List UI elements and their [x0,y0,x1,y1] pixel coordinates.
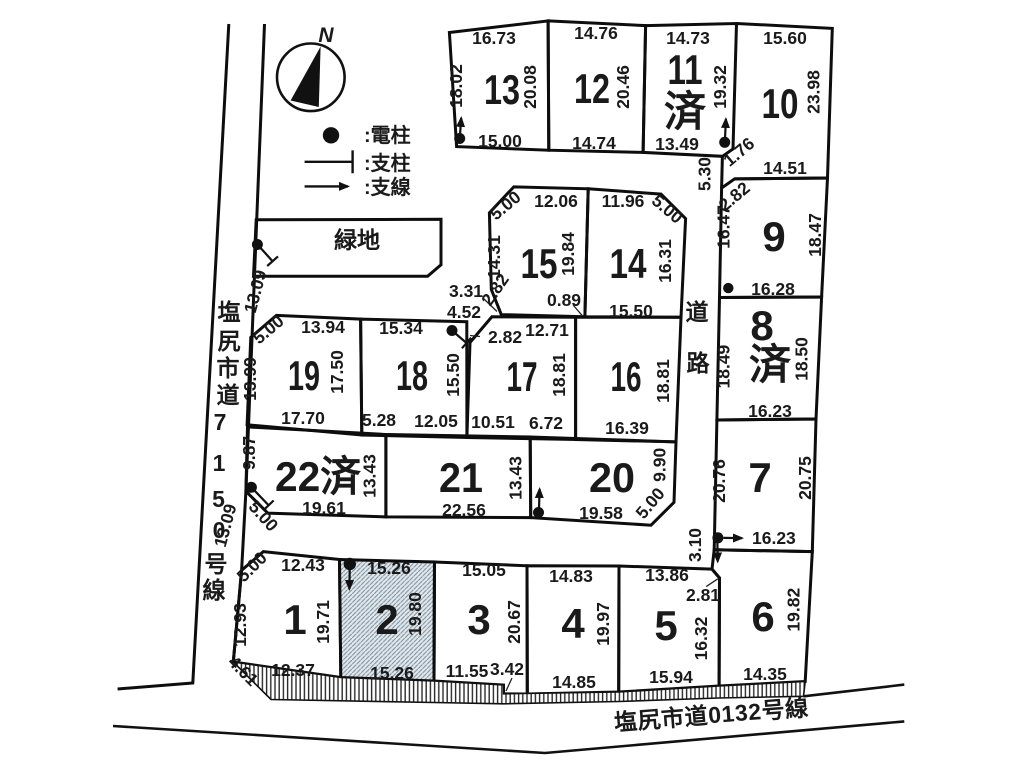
svg-text:20.76: 20.76 [709,459,729,503]
svg-text:緑地: 緑地 [334,227,380,253]
svg-text:19.84: 19.84 [558,232,578,276]
svg-text:号: 号 [205,551,228,577]
svg-text:15.60: 15.60 [763,28,807,48]
svg-text:0: 0 [213,517,226,543]
svg-text:道: 道 [217,382,240,408]
svg-text:4: 4 [561,600,585,647]
svg-text:7: 7 [214,409,227,435]
svg-text:3.31: 3.31 [449,281,483,301]
svg-text:10: 10 [762,80,799,127]
svg-text:13.09: 13.09 [240,267,271,315]
svg-text:尻: 尻 [218,328,241,354]
svg-text:17: 17 [507,353,538,400]
svg-text:10.51: 10.51 [471,412,515,432]
svg-text:13: 13 [484,66,520,113]
svg-text:14.85: 14.85 [552,672,596,692]
svg-text:11.55: 11.55 [446,661,489,681]
svg-text:9.87: 9.87 [239,436,259,470]
svg-text:15.50: 15.50 [443,353,463,397]
svg-text:N: N [318,24,334,47]
svg-text:12.06: 12.06 [534,191,578,211]
svg-text:15.94: 15.94 [649,667,693,687]
svg-text:16.47: 16.47 [713,205,733,249]
svg-text:15.50: 15.50 [609,301,653,321]
svg-text:13.86: 13.86 [645,565,689,585]
svg-text:11: 11 [668,46,703,93]
svg-text:16.31: 16.31 [655,239,675,283]
svg-text:16.23: 16.23 [748,401,792,421]
svg-text:5.00: 5.00 [245,497,283,536]
svg-text:12.43: 12.43 [281,555,325,575]
svg-text:12.05: 12.05 [414,411,458,431]
svg-text:15.05: 15.05 [462,560,506,580]
svg-text:19.32: 19.32 [710,65,730,109]
svg-text:3.42: 3.42 [490,659,524,679]
svg-text:12.93: 12.93 [230,603,250,647]
svg-text:21: 21 [439,454,483,501]
svg-text:14.73: 14.73 [666,28,710,48]
svg-text:路: 路 [687,350,711,376]
svg-text:5: 5 [654,602,677,649]
svg-text:12.71: 12.71 [525,320,569,340]
svg-text:2: 2 [375,596,398,643]
svg-text:道: 道 [686,299,709,325]
svg-text:18.02: 18.02 [446,64,466,108]
svg-text:18.49: 18.49 [713,344,733,388]
svg-text:13.99: 13.99 [240,357,260,401]
svg-text:15: 15 [521,240,558,287]
svg-text:16.23: 16.23 [752,528,796,548]
svg-text:塩: 塩 [218,299,241,325]
svg-text:3.10: 3.10 [685,528,705,562]
svg-text:済: 済 [664,88,707,135]
svg-text:14.35: 14.35 [743,664,787,684]
svg-text:19.80: 19.80 [405,592,425,636]
svg-text:19: 19 [288,352,320,399]
svg-text:12.37: 12.37 [271,660,315,680]
svg-text:13.94: 13.94 [301,317,345,337]
svg-text:18.50: 18.50 [792,337,812,381]
svg-text:18.47: 18.47 [805,213,825,257]
svg-text:19.82: 19.82 [784,588,804,632]
svg-text::支線: :支線 [364,175,411,199]
svg-text:14: 14 [610,240,648,287]
svg-text:19.61: 19.61 [302,498,346,518]
svg-text:4.52: 4.52 [447,302,481,322]
svg-text:20.75: 20.75 [795,456,815,500]
svg-text:20.67: 20.67 [504,600,524,644]
svg-text:17.70: 17.70 [281,408,325,428]
svg-text:14.83: 14.83 [549,566,593,586]
svg-text:16.28: 16.28 [751,279,795,299]
svg-text:12: 12 [574,65,610,112]
svg-text:11.96: 11.96 [602,191,645,211]
svg-text:15.00: 15.00 [478,131,522,151]
svg-text:2.82: 2.82 [488,327,522,347]
svg-text::支柱: :支柱 [364,151,411,175]
svg-text:線: 線 [203,577,226,603]
svg-text:15.26: 15.26 [367,558,411,578]
svg-text:14.74: 14.74 [572,133,616,153]
svg-text:19.71: 19.71 [313,600,333,644]
svg-text:5.00: 5.00 [486,187,525,224]
svg-text:済: 済 [749,341,792,388]
svg-text:7: 7 [748,454,771,501]
svg-text:5: 5 [212,486,225,512]
svg-text:16: 16 [611,353,642,400]
svg-text:6.72: 6.72 [529,413,563,433]
svg-text:6: 6 [751,593,774,640]
svg-text:14.76: 14.76 [574,23,618,43]
svg-text:20.08: 20.08 [520,65,540,109]
svg-text:5.28: 5.28 [362,410,396,430]
svg-text:23.98: 23.98 [804,70,824,114]
svg-text:18.81: 18.81 [653,359,673,403]
svg-text:1: 1 [213,450,226,476]
svg-text:13.43: 13.43 [506,456,526,500]
svg-text:5.30: 5.30 [694,157,714,191]
svg-text:0.89: 0.89 [547,290,581,310]
svg-text:17.50: 17.50 [327,350,347,394]
svg-text:1: 1 [283,596,306,643]
svg-text:22.56: 22.56 [442,500,486,520]
svg-text:5.00: 5.00 [648,190,687,227]
svg-text:13.49: 13.49 [655,134,699,154]
svg-text:15.26: 15.26 [370,663,414,683]
svg-text:16.32: 16.32 [691,616,711,660]
svg-text::電柱: :電柱 [364,123,411,147]
svg-text:18: 18 [396,352,428,399]
svg-text:16.73: 16.73 [472,28,516,48]
svg-text:市: 市 [217,355,240,381]
svg-text:18.81: 18.81 [549,353,569,397]
svg-text:19.58: 19.58 [579,503,623,523]
svg-text:16.39: 16.39 [605,418,649,438]
svg-text:3: 3 [467,596,490,643]
svg-text:19.97: 19.97 [593,602,613,646]
svg-text:22済: 22済 [275,453,362,500]
svg-text:5.00: 5.00 [631,483,668,522]
svg-text:20.46: 20.46 [613,65,633,109]
svg-text:9: 9 [762,213,785,260]
svg-text:13.43: 13.43 [360,454,380,498]
svg-text:9.90: 9.90 [650,448,670,482]
svg-text:20: 20 [589,454,635,501]
svg-text:14.51: 14.51 [763,158,807,178]
svg-text:15.34: 15.34 [379,318,423,338]
svg-text:2.81: 2.81 [686,585,720,605]
